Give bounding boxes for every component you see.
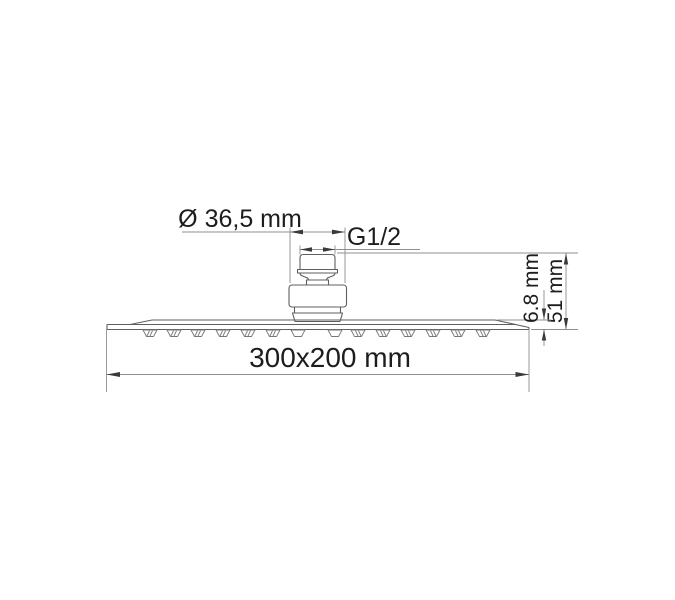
nozzle-hatch — [273, 331, 276, 336]
thickness-arrow-up — [542, 330, 546, 341]
nozzle — [328, 330, 342, 337]
nozzle-hatch — [384, 331, 387, 336]
neck-taper-left — [300, 273, 309, 280]
nozzle-hatch — [195, 331, 198, 336]
height-dimension-label: 51 mm — [544, 259, 567, 323]
nozzle-hatch — [270, 331, 273, 336]
thread-arrow-left — [300, 247, 312, 252]
nozzle-hatch — [484, 331, 487, 336]
size-arrow-left — [107, 372, 121, 377]
thread-pipe-outline — [300, 255, 335, 270]
spray-nozzles — [143, 330, 490, 337]
nozzle-hatch — [406, 331, 409, 336]
size-arrow-right — [516, 372, 530, 377]
nozzle-hatch — [198, 331, 201, 336]
nozzle-hatch — [456, 331, 459, 336]
neck-taper-right — [327, 273, 336, 280]
nozzle-hatch — [220, 331, 223, 336]
thread-dimension: G1/2 — [300, 223, 420, 255]
ball-joint-housing — [289, 285, 347, 307]
diameter-dimension-label: Ø 36,5 mm — [178, 205, 302, 233]
thickness-dimension-label: 6.8 mm — [520, 253, 543, 323]
diameter-dimension: Ø 36,5 mm — [178, 205, 345, 283]
nozzle-hatch — [223, 331, 226, 336]
diameter-arrow-right — [332, 230, 345, 235]
nozzle-hatch — [431, 331, 434, 336]
nozzle-hatch — [147, 331, 150, 336]
nozzle-hatch — [381, 331, 384, 336]
nozzle-hatch — [248, 331, 251, 336]
thread-dimension-label: G1/2 — [347, 223, 401, 251]
nozzle-hatch — [359, 331, 362, 336]
nozzle-hatch — [174, 331, 177, 336]
shower-connector — [289, 255, 347, 322]
nozzle-hatch — [356, 331, 359, 336]
size-dimension: 300x200 mm — [107, 330, 530, 393]
nozzle-hatch — [245, 331, 248, 336]
shower-head-dimension-drawing: Ø 36,5 mm G1/2 51 mm 6.8 mm 300x200 mm — [0, 0, 675, 600]
collar-outline — [298, 270, 338, 274]
plate-left-bevel — [130, 320, 152, 325]
nozzle-hatch — [171, 331, 174, 336]
thickness-dimension: 6.8 mm — [497, 253, 551, 346]
flange-neck — [295, 307, 341, 313]
size-dimension-label: 300x200 mm — [249, 342, 411, 373]
drawing-canvas: Ø 36,5 mm G1/2 51 mm 6.8 mm 300x200 mm — [0, 0, 675, 600]
neck-throat — [307, 280, 329, 285]
nozzle-hatch — [434, 331, 437, 336]
nozzle — [291, 330, 305, 337]
nozzle-hatch — [409, 331, 412, 336]
nozzle-hatch — [459, 331, 462, 336]
nozzle-hatch — [481, 331, 484, 336]
thread-arrow-right — [323, 247, 335, 252]
nozzle-hatch — [150, 331, 153, 336]
